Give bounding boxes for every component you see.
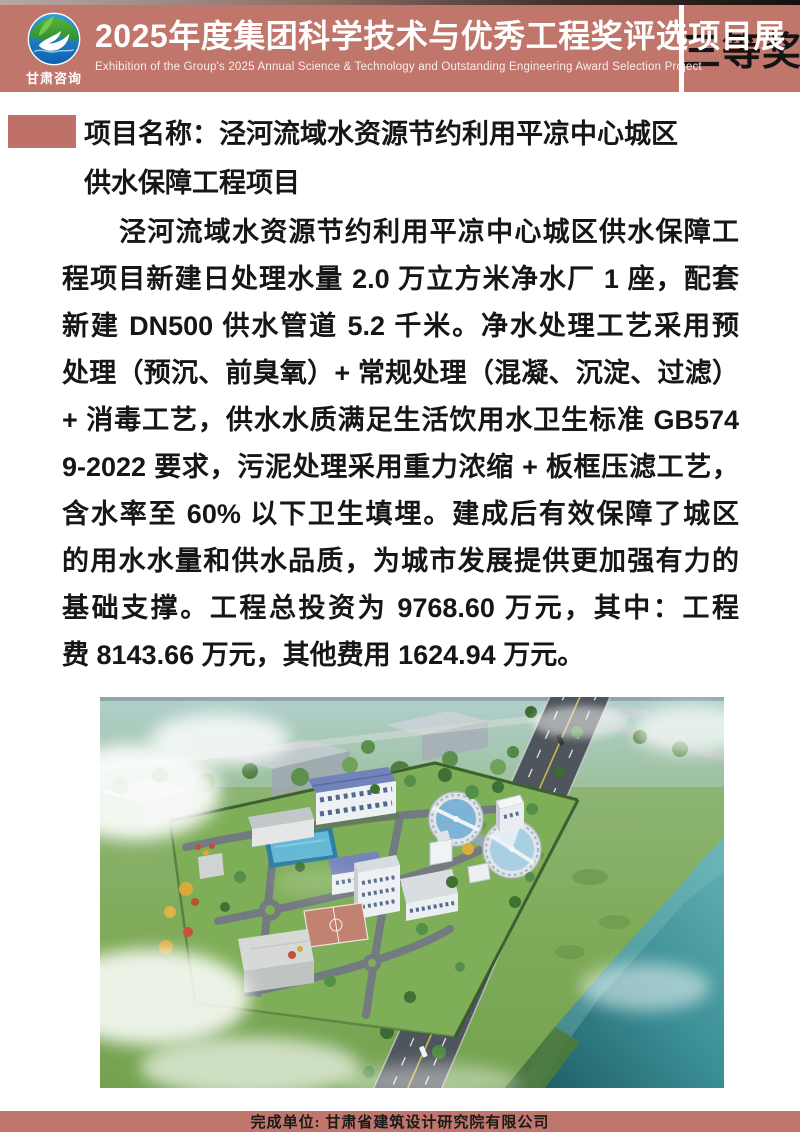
body-text-line: 新建 DN500 供水管道 5.2 千米。净水处理工艺采用预 (62, 303, 739, 350)
swan-leaf-wave-logo-icon (27, 12, 81, 66)
body-text-line: 9-2022 要求，污泥处理采用重力浓缩 + 板框压滤工艺， (62, 444, 739, 491)
body-text-line: 处理（预沉、前臭氧）+ 常规处理（混凝、沉淀、过滤） (62, 350, 739, 397)
body-text-line: 基础支撑。工程总投资为 9768.60 万元，其中：工程 (62, 585, 739, 632)
body-text-line: 费 8143.66 万元，其他费用 1624.94 万元。 (62, 632, 739, 679)
exhibition-title-block: 2025年度集团科学技术与优秀工程奖评选项目展 Exhibition of th… (95, 16, 670, 73)
project-name-heading: 项目名称：泾河流域水资源节约利用平凉中心城区 供水保障工程项目 (84, 110, 784, 208)
completed-by-text: 完成单位: 甘肃省建筑设计研究院有限公司 (251, 1111, 550, 1132)
basketball-court (304, 903, 368, 947)
body-text-line: 泾河流域水资源节约利用平凉中心城区供水保障工 (62, 209, 739, 256)
award-header: 甘肃咨询 2025年度集团科学技术与优秀工程奖评选项目展 Exhibition … (0, 5, 800, 92)
body-text-line: 的用水水量和供水品质，为城市发展提供更加强有力的 (62, 538, 739, 585)
project-name-accent-block (8, 115, 76, 148)
pump-building (496, 795, 524, 833)
exhibition-title: 2025年度集团科学技术与优秀工程奖评选项目展 (95, 16, 670, 56)
project-name-line1: 项目名称：泾河流域水资源节约利用平凉中心城区 (84, 110, 784, 159)
body-text-line: + 消毒工艺，供水水质满足生活饮用水卫生标准 GB574 (62, 397, 739, 444)
body-text-line: 含水率至 60% 以下卫生填埋。建成后有效保障了城区 (62, 491, 739, 538)
body-text-line: 程项目新建日处理水量 2.0 万立方米净水厂 1 座，配套 (62, 256, 739, 303)
project-description: 泾河流域水资源节约利用平凉中心城区供水保障工 程项目新建日处理水量 2.0 万立… (62, 209, 739, 679)
exhibition-subtitle: Exhibition of the Group's 2025 Annual Sc… (95, 61, 670, 73)
footer-bar: 完成单位: 甘肃省建筑设计研究院有限公司 (0, 1111, 800, 1132)
org-logo: 甘肃咨询 (18, 9, 90, 92)
project-name-line2: 供水保障工程项目 (84, 159, 784, 208)
org-name: 甘肃咨询 (18, 68, 90, 87)
warehouse-building (238, 929, 314, 993)
award-poster-page: { "theme":{ "header_bg":"#c1766c", "acce… (0, 0, 800, 1132)
site-rendering-image (100, 697, 724, 1088)
header-main-band: 甘肃咨询 2025年度集团科学技术与优秀工程奖评选项目展 Exhibition … (0, 5, 679, 92)
